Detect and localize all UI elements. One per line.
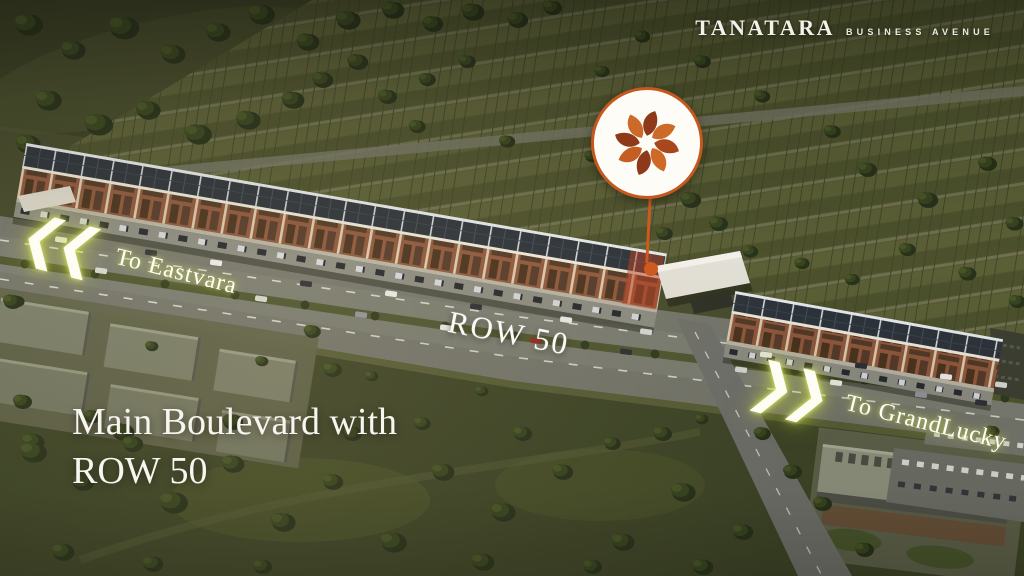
aerial-marketing-slide: TANATARA BUSINESS AVENUE ❮❮ To Eastvara … [0, 0, 1024, 576]
brand-tagline: BUSINESS AVENUE [846, 27, 994, 37]
main-caption: Main Boulevard with ROW 50 [72, 398, 397, 495]
chevrons-right-icon: ❯❯ [744, 357, 840, 423]
chevrons-left-icon: ❮❮ [14, 211, 110, 277]
brand-logo: TANATARA BUSINESS AVENUE [695, 15, 994, 41]
caption-line-1: Main Boulevard with [72, 398, 397, 447]
brand-name: TANATARA [695, 15, 835, 41]
location-badge [591, 87, 703, 199]
tanatara-flower-icon [610, 106, 684, 180]
badge-pointer-dot [644, 262, 658, 276]
caption-line-2: ROW 50 [72, 447, 397, 496]
